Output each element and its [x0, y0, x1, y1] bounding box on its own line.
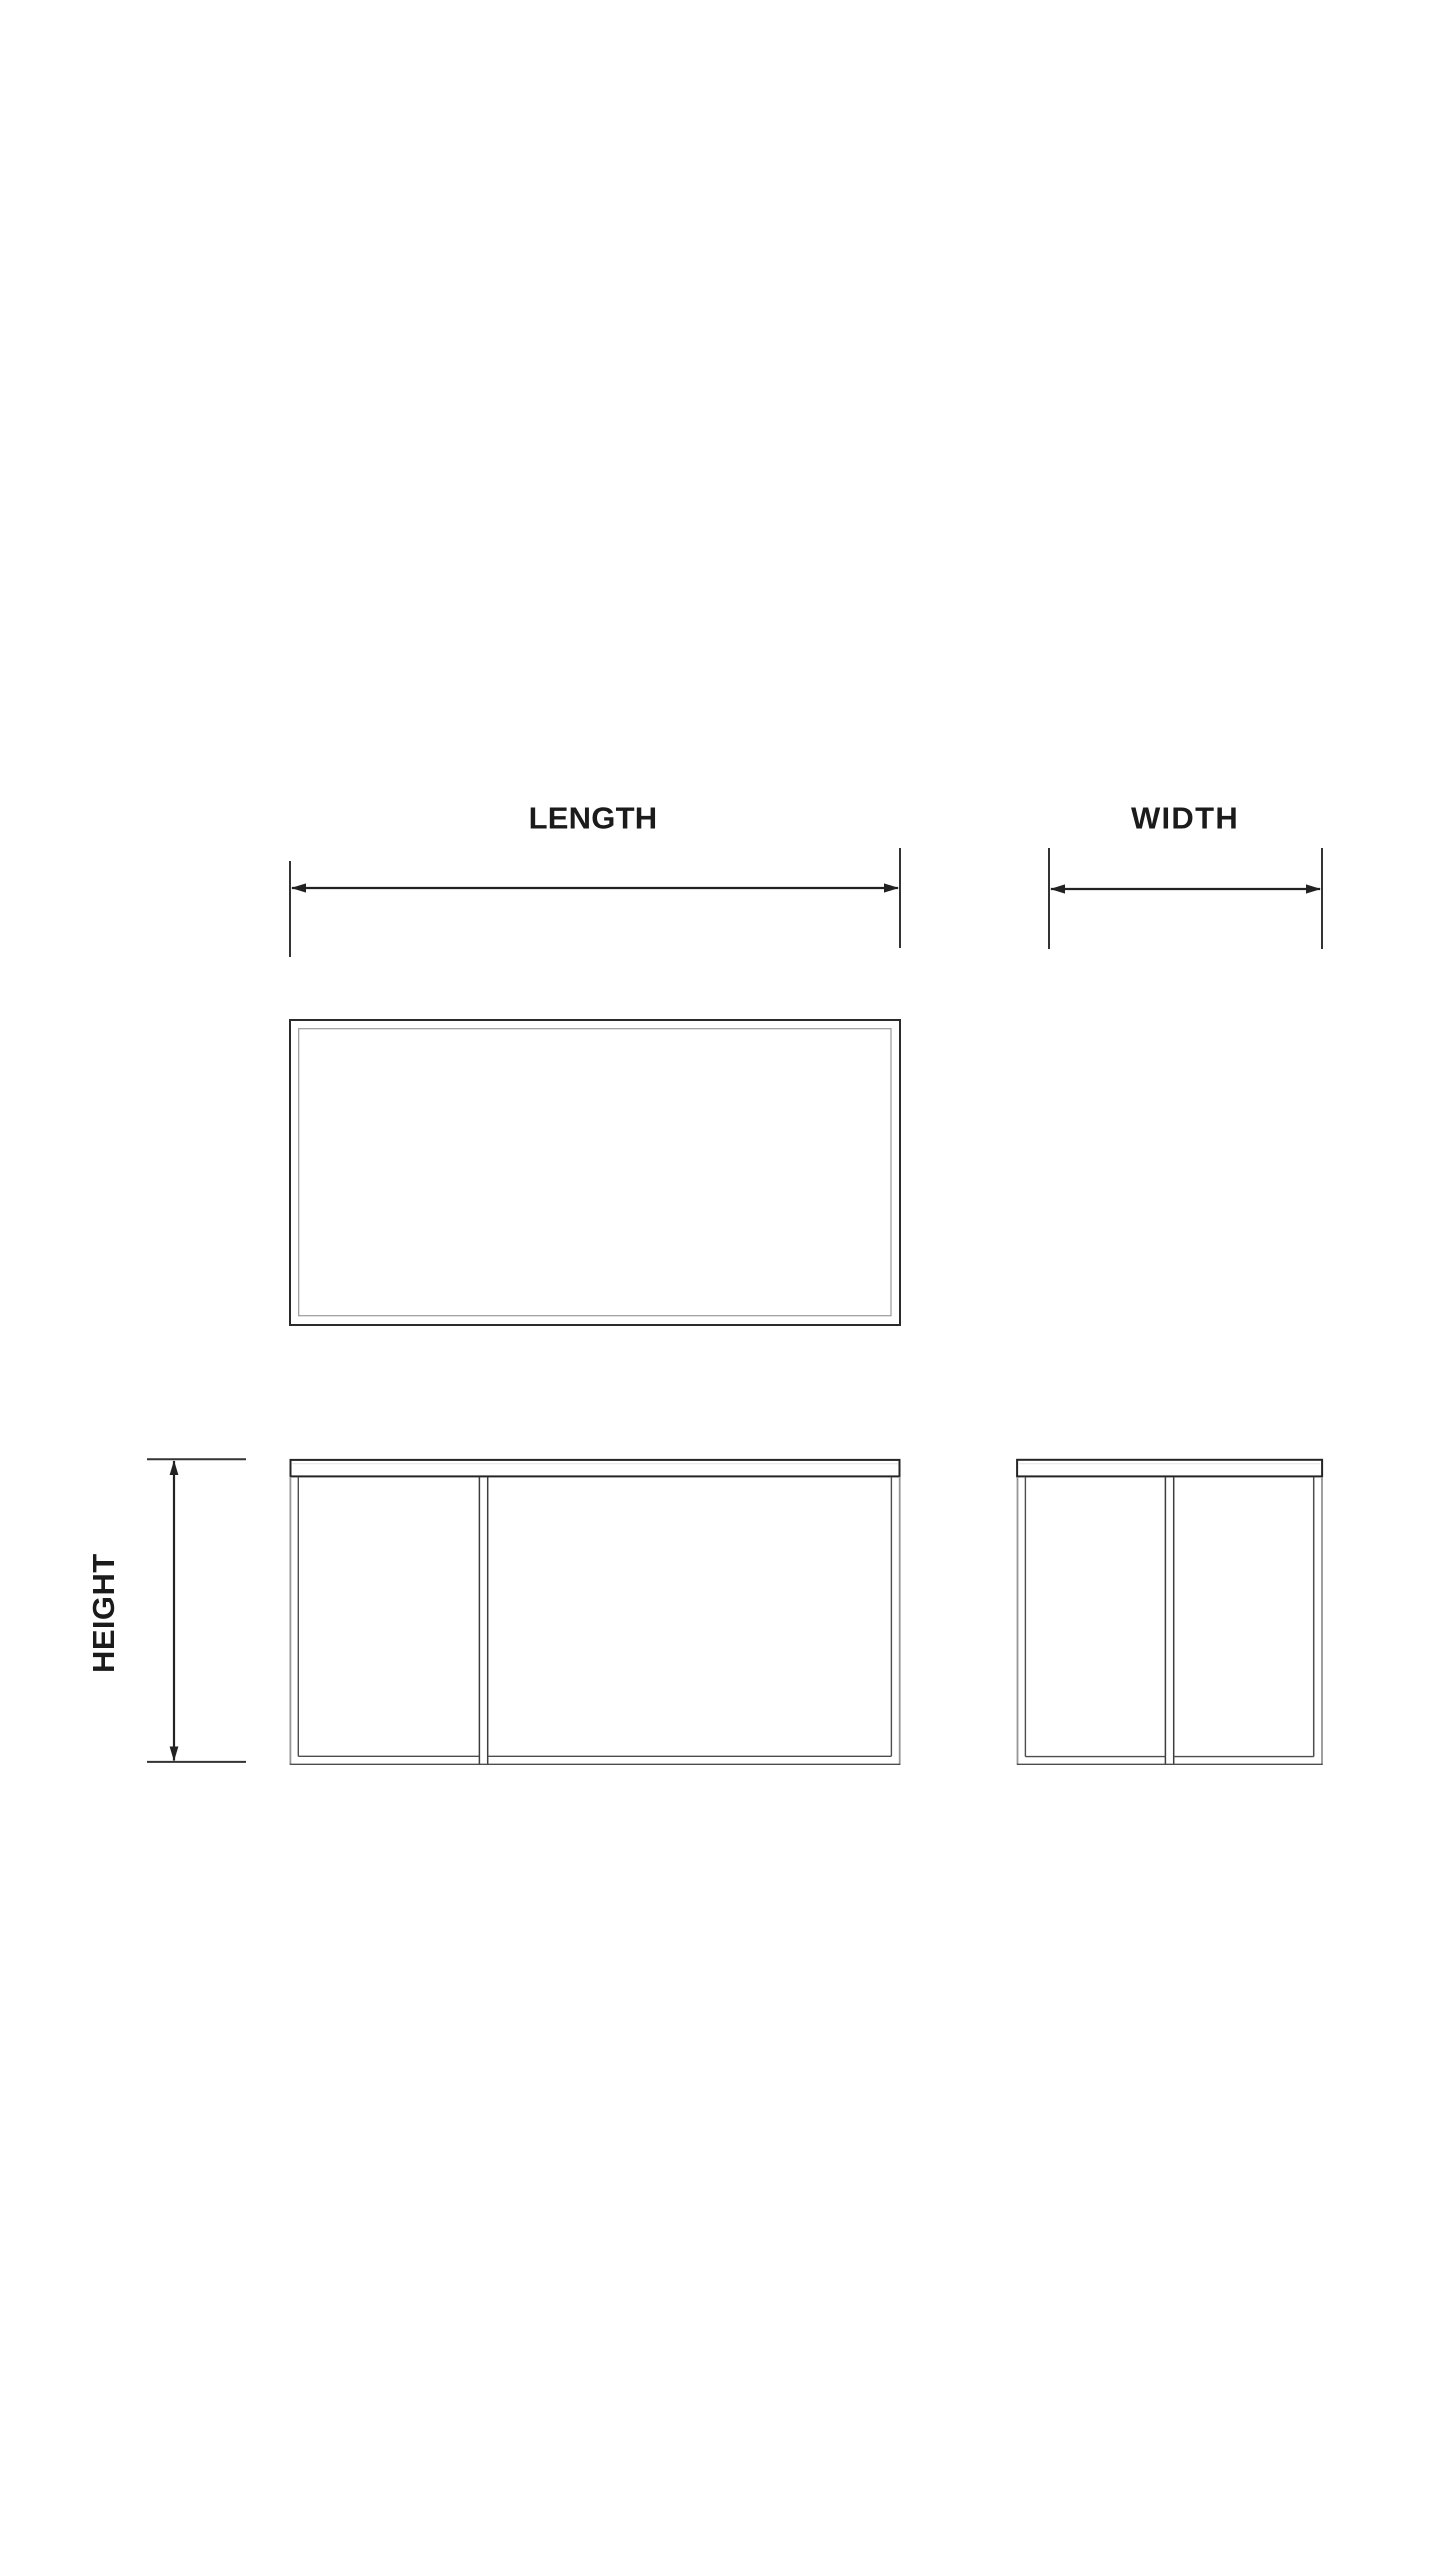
svg-text:HEIGHT: HEIGHT: [86, 1553, 121, 1673]
svg-text:LENGTH: LENGTH: [529, 801, 658, 836]
svg-text:WIDTH: WIDTH: [1131, 801, 1239, 836]
